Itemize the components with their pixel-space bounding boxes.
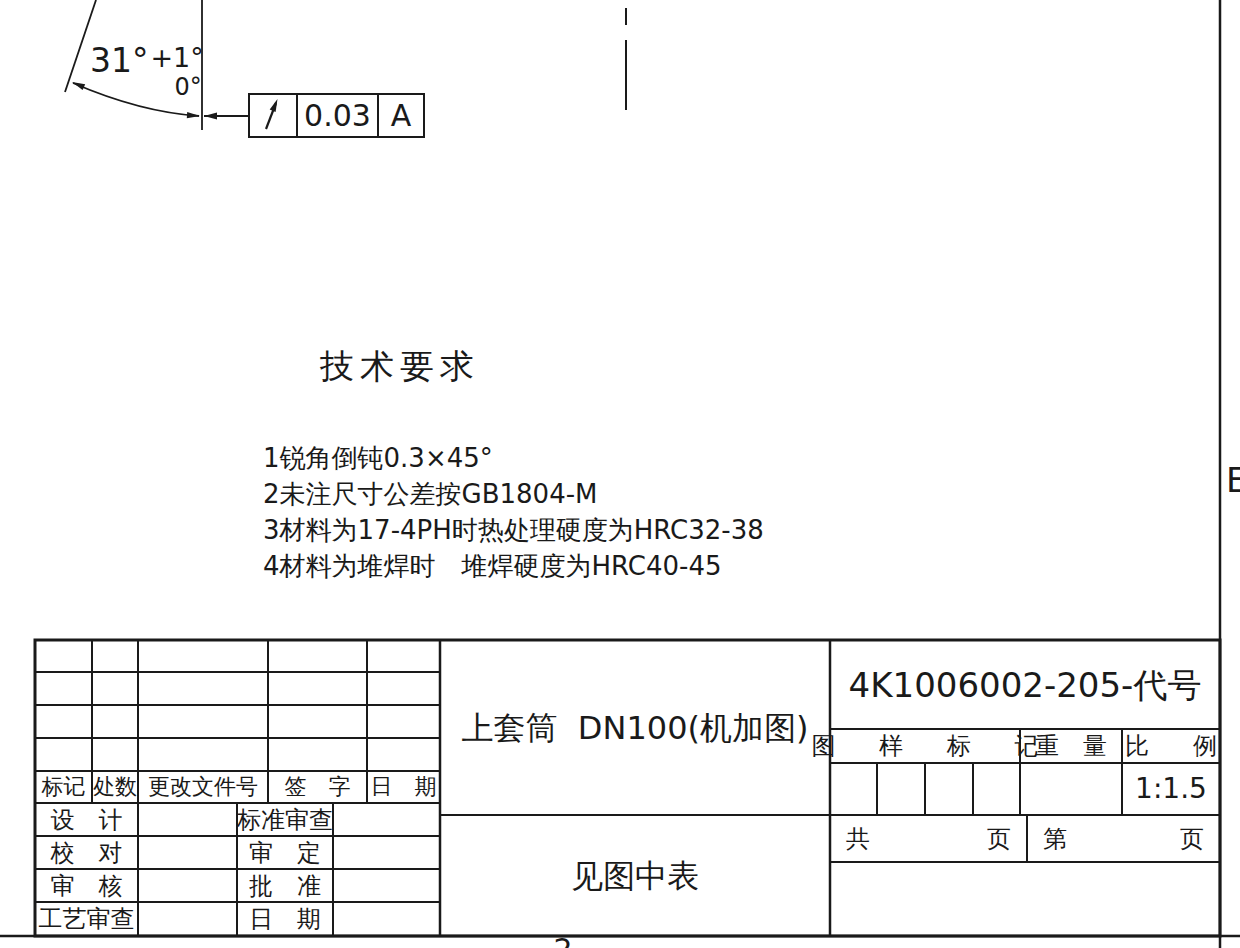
- revision-col-date: 日 期: [367, 771, 440, 803]
- approval-process-audit-label: 工艺审查: [35, 902, 138, 936]
- sheet-page-unit: 页: [1180, 827, 1204, 851]
- tech-requirement-item: 4材料为堆焊时 堆焊硬度为HRC40-45: [263, 548, 764, 584]
- approval-examine-label: 审 定: [237, 836, 333, 869]
- tech-requirements-list: 1锐角倒钝0.3×45° 2未注尺寸公差按GB1804-M 3材料为17-4PH…: [263, 440, 764, 584]
- part-title: 上套筒 DN100(机加图): [440, 640, 830, 815]
- approval-approve-label: 批 准: [237, 869, 333, 902]
- circular-runout-icon: [266, 99, 278, 129]
- tech-requirement-item: 3材料为17-4PH时热处理硬度为HRC32-38: [263, 512, 764, 548]
- approval-standard-check-label: 标准审查: [237, 803, 333, 836]
- angle-value: 31°: [90, 44, 149, 77]
- angle-tolerance-upper: +1°: [151, 44, 204, 71]
- zone-letter-right: E: [1226, 462, 1240, 498]
- tech-requirements-heading: 技术要求: [320, 349, 480, 383]
- fcf-tolerance-value: 0.03: [297, 94, 378, 137]
- tech-requirement-item: 1锐角倒钝0.3×45°: [263, 440, 764, 476]
- revision-col-change-doc: 更改文件号: [138, 771, 268, 803]
- tech-requirement-item: 2未注尺寸公差按GB1804-M: [263, 476, 764, 512]
- angle-tolerance-lower: 0°: [175, 75, 202, 99]
- stamp-scale-header: 比 例: [1122, 729, 1220, 763]
- fcf-datum-letter: A: [378, 94, 424, 137]
- zone-number-bottom: 2: [550, 933, 576, 948]
- revision-col-count: 处数: [92, 771, 138, 803]
- stamp-weight-header: 重 量: [1020, 729, 1122, 763]
- approval-proofread-label: 校 对: [35, 836, 138, 869]
- sheet-total-cell: 共 页: [830, 815, 1027, 862]
- sheet-total-unit: 页: [987, 827, 1011, 851]
- angle-tolerance: +1° 0°: [151, 44, 204, 99]
- scale-value: 1:1.5: [1122, 763, 1220, 815]
- revision-col-signature: 签 字: [268, 771, 367, 803]
- drawing-number: 4K1006002-205-代号: [830, 640, 1220, 729]
- material-note: 见图中表: [440, 815, 830, 936]
- approval-design-label: 设 计: [35, 803, 138, 836]
- sheet-page-label: 第: [1043, 827, 1067, 851]
- sheet-page-cell: 第 页: [1027, 815, 1220, 862]
- approval-date-label: 日 期: [237, 902, 333, 936]
- revision-col-mark: 标记: [35, 771, 92, 803]
- angle-dimension-text: 31° +1° 0°: [90, 44, 204, 99]
- stamp-mark-header: 图 样 标 记: [830, 729, 1020, 763]
- approval-review-label: 审 核: [35, 869, 138, 902]
- sheet-total-label: 共: [846, 827, 870, 851]
- engineering-drawing-sheet: 31° +1° 0° 0.03 A 技术要求 1锐角倒钝0.3×45° 2未注尺…: [0, 0, 1240, 948]
